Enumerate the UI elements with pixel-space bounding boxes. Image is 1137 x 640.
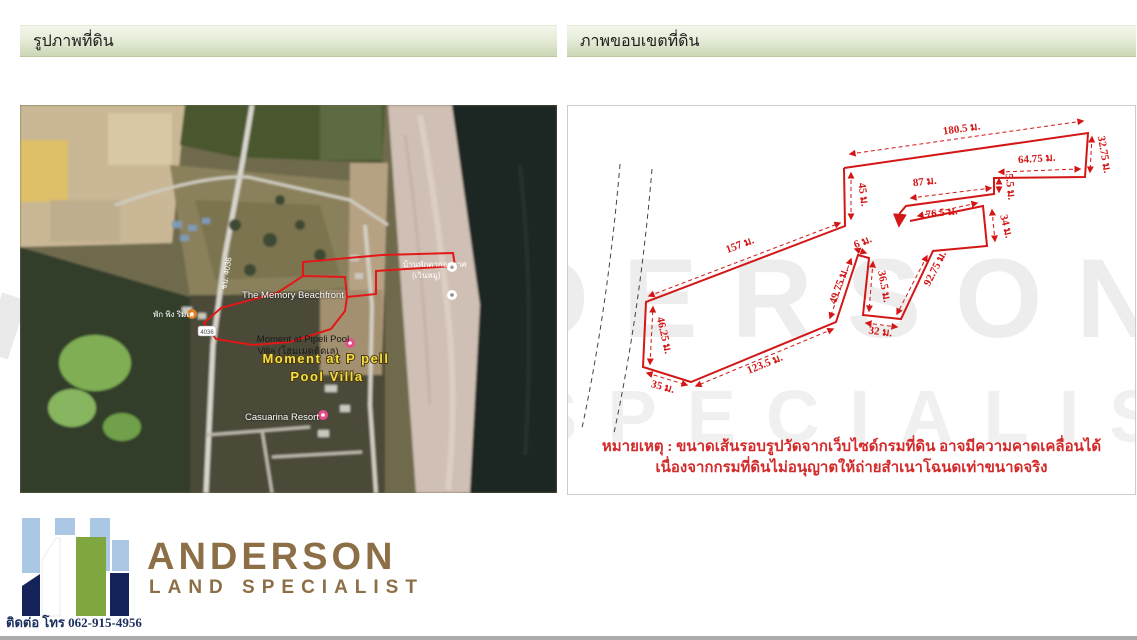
buildings-logo-icon <box>20 516 138 618</box>
measurement-label: 76.5 ม. <box>925 205 958 221</box>
coastline-dashed-lines <box>582 164 652 433</box>
map-label-pakping: พัก พิง ริมเล <box>153 310 194 319</box>
measurement-label: 157 ม. <box>724 234 756 256</box>
diagram-note-line2: เนื่องจากกรมที่ดินไม่อนุญาตให้ถ่ายสำเนาโ… <box>568 458 1135 479</box>
measurement-label: 35 ม. <box>650 378 676 396</box>
measurement-label: 64.75 ม. <box>1018 152 1056 167</box>
measurement-label: 46.25 ม. <box>654 316 674 355</box>
map-label-moment-poi-1: Moment at Pipeli Pool <box>257 334 349 345</box>
boundary-diagram-panel: DERSON SPECIALIST <box>567 105 1136 495</box>
map-label-memory-beachfront: The Memory Beachfront <box>242 290 344 301</box>
measurement-label: 32.75 ม. <box>1095 135 1113 174</box>
satellite-map-image: 4036 ชบ. 4036 The Memory Beachfront บ้าน… <box>20 105 557 493</box>
land-boundary-polygon <box>643 133 1088 382</box>
measurement-label: 36.5 ม. <box>875 270 893 304</box>
logo-tagline: LAND SPECIALIST <box>149 577 424 599</box>
measurement-label: 34 ม. <box>997 213 1014 239</box>
bottom-divider-bar <box>0 636 1137 640</box>
diagram-note: หมายเหตุ : ขนาดเส้นรอบรูปวัดจากเว็บไซด์ก… <box>568 437 1135 479</box>
measurement-label: 123.5 ม. <box>745 352 784 377</box>
satellite-map-canvas: 4036 ชบ. 4036 The Memory Beachfront บ้าน… <box>20 105 557 493</box>
boundary-diagram: 180.5 ม. 32.75 ม. 64.75 ม. 5.5 ม. 87 ม. … <box>568 106 1135 494</box>
map-label-baanpak-1: บ้านพักตากอากาศ <box>403 260 466 269</box>
measurement-label: 45 ม. <box>855 182 870 207</box>
measurement-label: 180.5 ม. <box>942 120 981 137</box>
logo-company-name: ANDERSON <box>147 536 396 579</box>
measurement-label: 32 ม. <box>868 325 893 340</box>
left-panel-header: รูปภาพที่ดิน <box>20 25 557 57</box>
map-label-moment-big-2: Pool Villa <box>290 369 363 384</box>
measurement-label: 6 ม. <box>852 233 874 251</box>
contact-phone: ติดต่อ โทร 062-915-4956 <box>6 612 142 633</box>
road-shield-number: 4036 <box>200 330 214 336</box>
map-label-moment-big-1: Moment at P pell <box>262 351 389 366</box>
right-panel-title: ภาพขอบเขตที่ดิน <box>580 29 699 54</box>
map-label-casuarina: Casuarina Resort <box>245 412 319 423</box>
map-label-baanpak-2: (เวินหมู) <box>412 271 441 281</box>
right-panel-header: ภาพขอบเขตที่ดิน <box>567 25 1136 57</box>
left-panel-title: รูปภาพที่ดิน <box>33 29 114 54</box>
measurement-label: 5.5 ม. <box>1003 173 1018 201</box>
measurement-label: 87 ม. <box>912 175 937 189</box>
diagram-note-line1: หมายเหตุ : ขนาดเส้นรอบรูปวัดจากเว็บไซด์ก… <box>568 437 1135 458</box>
